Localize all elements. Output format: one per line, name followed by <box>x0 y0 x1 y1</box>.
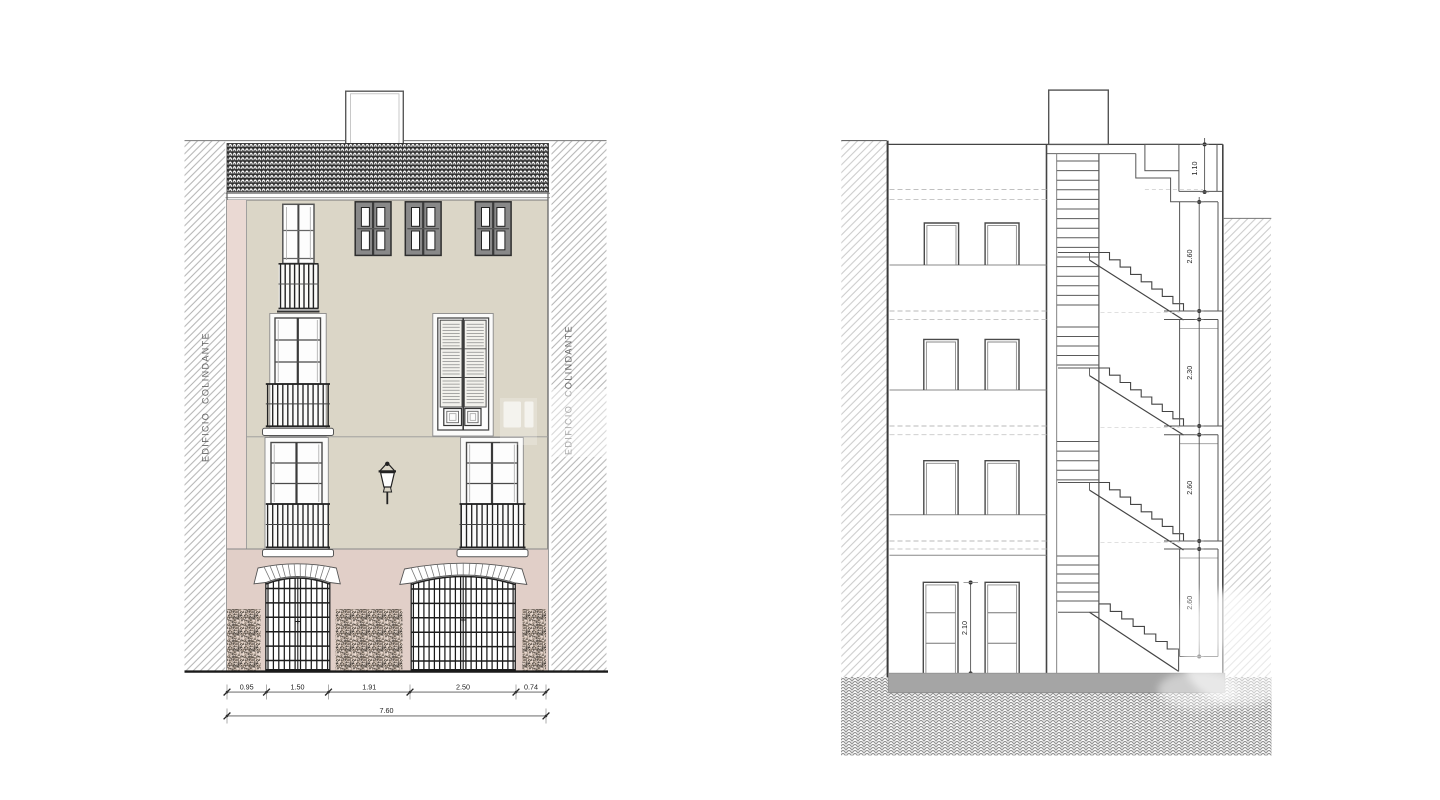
svg-text:EDIFICIO COLINDANTE: EDIFICIO COLINDANTE <box>201 332 211 462</box>
svg-text:0.74: 0.74 <box>524 682 538 691</box>
svg-text:0.95: 0.95 <box>240 682 254 691</box>
svg-text:1.91: 1.91 <box>362 682 376 691</box>
svg-text:1.50: 1.50 <box>291 682 305 691</box>
svg-text:1.10: 1.10 <box>1190 162 1199 176</box>
svg-text:2.10: 2.10 <box>960 621 969 635</box>
svg-text:2.30: 2.30 <box>1185 366 1194 380</box>
svg-text:2.60: 2.60 <box>1185 250 1194 264</box>
svg-text:2.50: 2.50 <box>456 682 470 691</box>
svg-text:2.60: 2.60 <box>1185 481 1194 495</box>
svg-text:7.60: 7.60 <box>380 706 394 715</box>
